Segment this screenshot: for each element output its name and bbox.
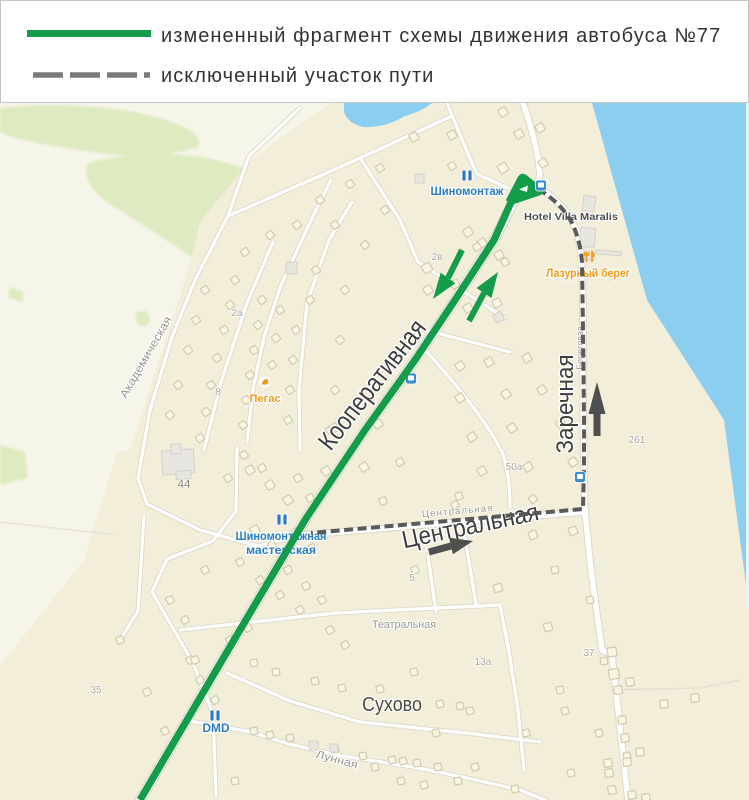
svg-text:Шиномонтаж: Шиномонтаж [431,184,504,198]
svg-text:DMD: DMD [203,721,230,735]
svg-text:261: 261 [629,435,646,446]
svg-text:5: 5 [409,573,415,584]
svg-text:Пегас: Пегас [250,393,281,405]
svg-text:Лазурный берег: Лазурный берег [546,268,630,280]
svg-text:Шиномонтажная: Шиномонтажная [236,531,327,543]
svg-text:Сухово: Сухово [362,694,422,716]
svg-text:37: 37 [583,648,595,659]
svg-text:2в: 2в [432,252,443,263]
svg-text:50а: 50а [506,462,523,473]
svg-text:Театральная: Театральная [372,619,436,631]
svg-text:35: 35 [90,685,102,696]
svg-text:44: 44 [178,479,191,491]
svg-text:2а: 2а [231,308,243,319]
svg-text:8: 8 [215,387,221,398]
svg-text:13а: 13а [475,657,492,668]
